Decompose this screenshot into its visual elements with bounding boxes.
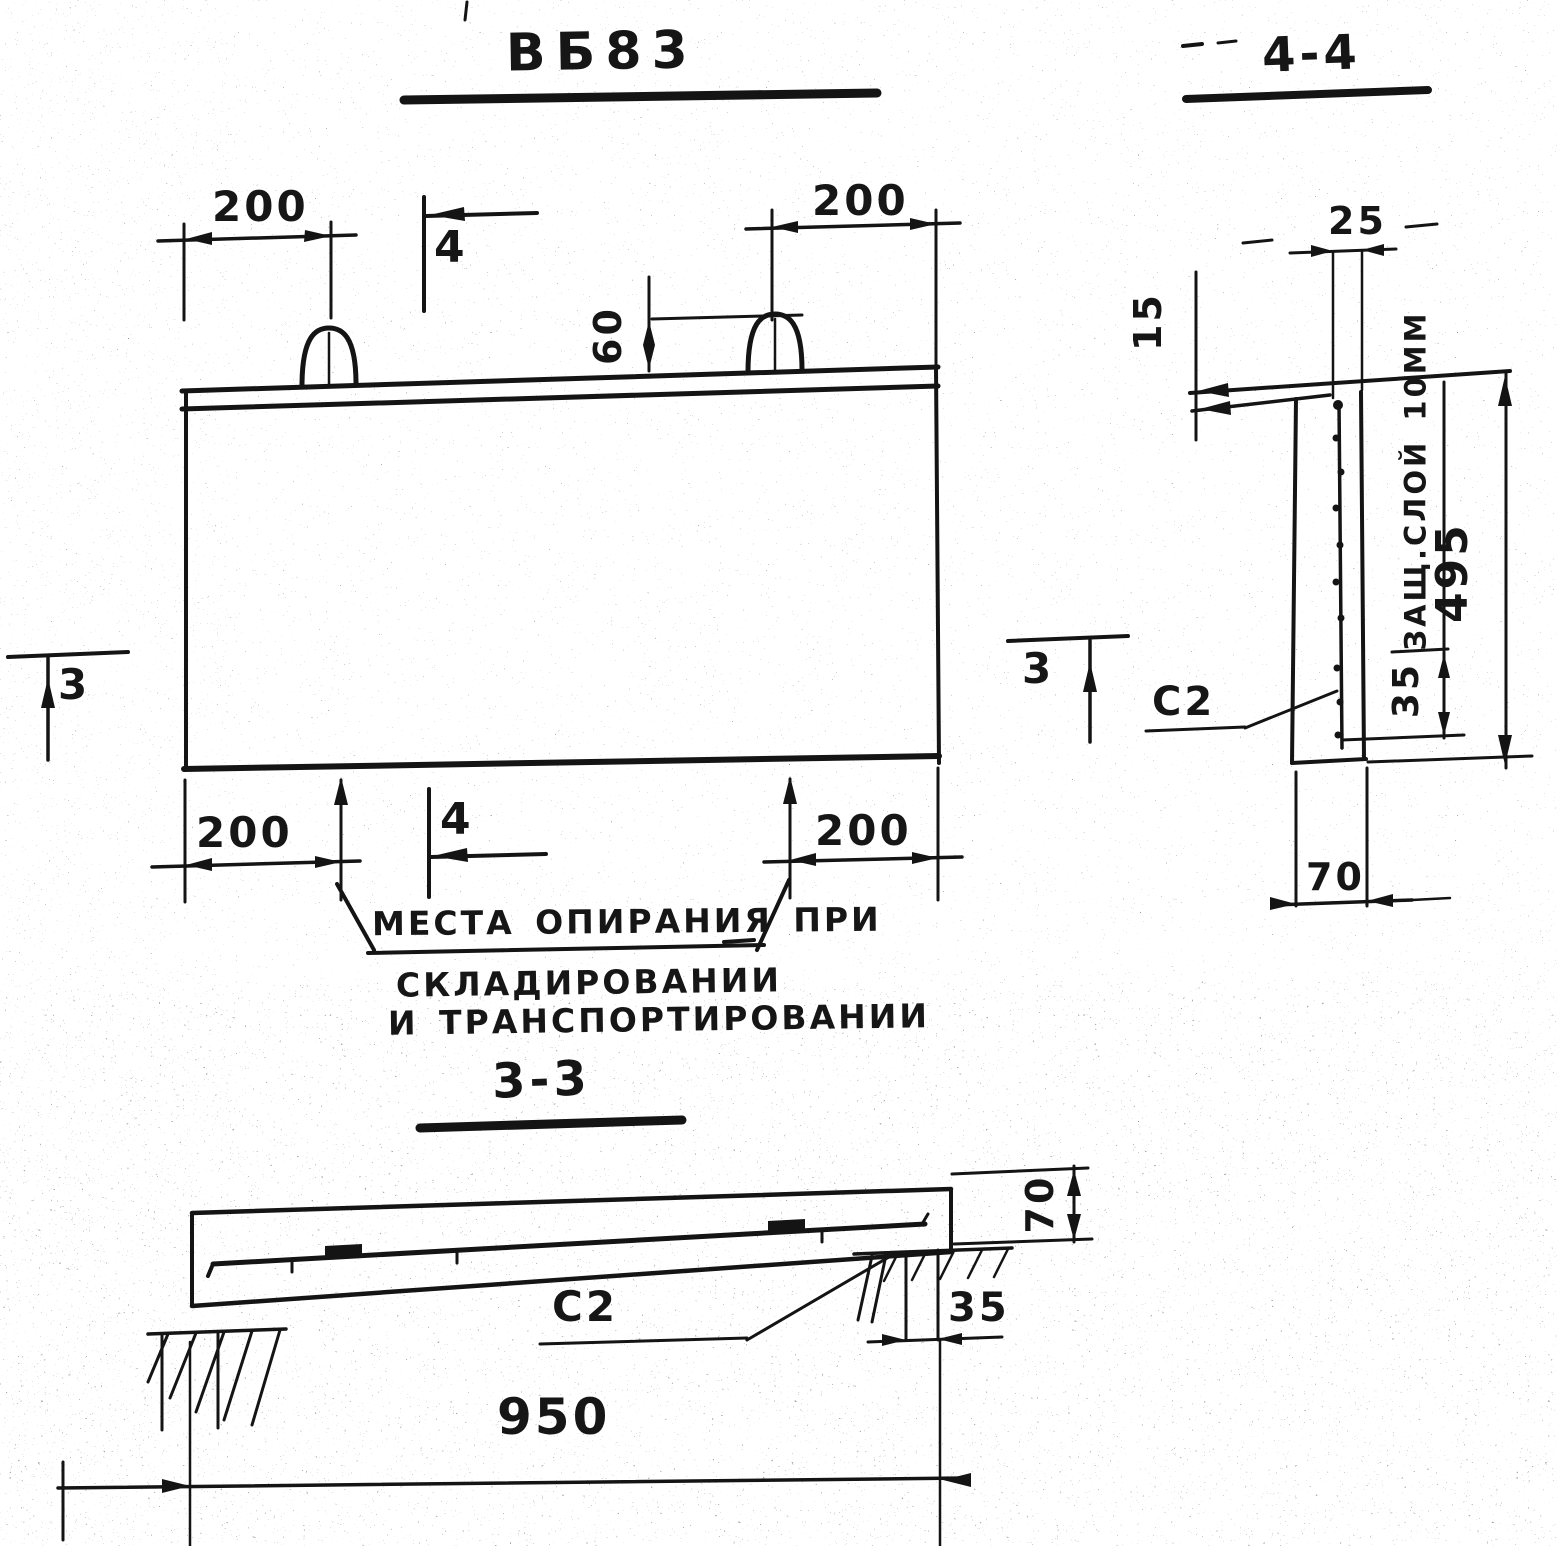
dim-35-section33: [868, 1333, 1002, 1346]
cut-label-4-bottom: 4: [440, 798, 474, 842]
dim-label-bottom-right-200: 200: [815, 810, 912, 852]
dim-label-15: 15: [1129, 291, 1167, 351]
dim-label-35-section44: 35: [1389, 655, 1425, 725]
dim-label-495: 495: [1431, 533, 1475, 623]
dim-label-70-section33: 70: [1021, 1174, 1059, 1234]
dim-label-top-right-200: 200: [812, 180, 909, 222]
scan-noise: [0, 0, 1557, 1546]
rebar-mesh-line: [208, 1214, 928, 1276]
section-33-title: 3-3: [491, 1054, 591, 1105]
section-33-linework: [58, 1166, 1092, 1546]
dim-label-top-left-200: 200: [212, 186, 309, 228]
dim-label-25: 25: [1328, 202, 1387, 240]
dim-label-bottom-left-200: 200: [196, 812, 293, 854]
cut-label-3-right: 3: [1022, 648, 1054, 690]
dim-label-950: 950: [497, 1392, 610, 1442]
dim-label-70-section44: 70: [1306, 858, 1365, 896]
support-note-line3: И ТРАНСПОРТИРОВАНИИ: [388, 999, 930, 1040]
mesh-label-c2-section44: С2: [1152, 682, 1215, 722]
title-underlines: [404, 2, 1428, 1128]
dim-top-right-200: [746, 210, 960, 366]
dim-label-35-section33: 35: [948, 1288, 1010, 1328]
lifting-loop-icon: [302, 328, 356, 386]
support-hatch-left: [148, 1329, 286, 1430]
dim-top-left-200: [158, 222, 356, 320]
mesh-label-c2-section33: С2: [552, 1286, 618, 1328]
dim-loop-height-60: [643, 277, 802, 371]
drawing-title: ВБ83: [506, 24, 699, 79]
cut-label-4-top: 4: [434, 226, 468, 270]
slab-outline: [182, 367, 939, 769]
section-44-body: [1292, 392, 1366, 763]
rebar-mesh-section: [1333, 400, 1345, 748]
cut-label-3-left: 3: [58, 664, 90, 706]
scan-artifact: [465, 2, 467, 20]
dim-15: [1196, 272, 1231, 440]
lifting-loop-icon: [748, 314, 802, 372]
blueprint-scan: ВБ83 4-4 3-3 200 200 60 200 200 4 4 3 3 …: [0, 0, 1557, 1546]
support-note-line2: СКЛАДИРОВАНИИ: [396, 963, 782, 1001]
section-44-title: 4-4: [1261, 28, 1361, 79]
drawing-linework: [0, 0, 1557, 1546]
dim-label-loop-height-60: 60: [589, 309, 627, 365]
support-note-line1: МЕСТА ОПИРАНИЯ ПРИ: [372, 903, 882, 940]
cover-note-label: ЗАЩ.СЛОЙ 10ММ: [1402, 381, 1431, 651]
elevation-view-linework: [8, 197, 1128, 953]
